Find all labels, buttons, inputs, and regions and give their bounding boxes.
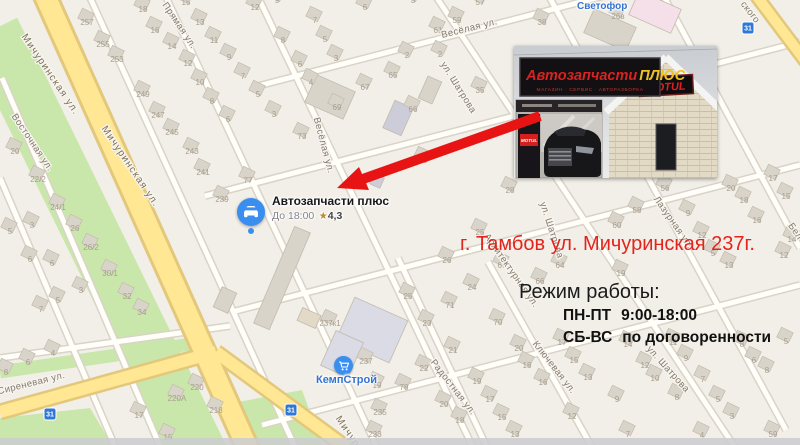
house-number: 218 (209, 406, 223, 415)
house-number: 6 (363, 3, 368, 12)
house-number: 13 (584, 373, 593, 382)
house-number: 15 (182, 0, 191, 7)
store-label[interactable]: Автозапчасти плюс До 18:00 ★4,3 (272, 195, 389, 223)
house-number: 57 (476, 0, 485, 7)
house-number: 11 (210, 36, 219, 45)
house-number: 5 (784, 337, 789, 346)
house-number: 7 (701, 375, 706, 384)
house-number: 245 (165, 128, 179, 137)
house-number: 16 (539, 378, 548, 387)
rating-star-icon: ★ (319, 211, 328, 222)
photo-window (656, 124, 676, 170)
house-number: 8 (4, 368, 9, 377)
house-number: 67 (361, 83, 370, 92)
house-number: 70 (494, 318, 503, 327)
store-rating: 4,3 (328, 210, 343, 222)
house-number: 58 (633, 206, 642, 215)
house-number: 65 (389, 71, 398, 80)
house-number: 20 (727, 184, 736, 193)
car-silhouette (544, 126, 601, 177)
house-number: 9 (686, 209, 691, 218)
house-number: 38 (538, 18, 547, 27)
house-number: 7 (313, 16, 318, 25)
house-number: 22 (420, 364, 429, 373)
house-number: 25 (404, 292, 413, 301)
working-hours-weekdays: ПН-ПТ9:00-18:00 (563, 307, 697, 325)
svg-text:АвтозапчастиПЛЮС: АвтозапчастиПЛЮС (525, 68, 686, 84)
address-annotation: г. Тамбов ул. Мичуринская 237г. (460, 233, 755, 256)
weekdays-time: 9:00-18:00 (621, 307, 697, 324)
house-number: 33 (419, 156, 428, 165)
house-number: 235 (373, 408, 387, 417)
house-number: 15 (498, 413, 507, 422)
house-number: 23 (423, 319, 432, 328)
kempstroy-label[interactable]: КемпСтрой (316, 374, 377, 386)
house-number: 243 (185, 147, 199, 156)
house-number: 24/1 (50, 203, 66, 212)
house-number: 6 (26, 358, 31, 367)
house-number: 17 (486, 395, 495, 404)
house-number: 5 (256, 90, 261, 99)
working-hours-weekend: СБ-ВСпо договоренности (563, 329, 771, 347)
house-number: 3 (411, 0, 416, 5)
weekdays-label: ПН-ПТ (563, 307, 611, 325)
house-number: 26 (443, 256, 452, 265)
house-number: 5 (716, 395, 721, 404)
house-number: 16 (151, 26, 160, 35)
house-number: 18 (139, 5, 148, 14)
house-number: 56 (661, 184, 670, 193)
car-icon (242, 203, 260, 221)
house-number: 10 (196, 78, 205, 87)
house-number: 6 (298, 60, 303, 69)
svg-text:МАГАЗИН · СЕРВИС · АВТОРАЗБОРК: МАГАЗИН · СЕРВИС · АВТОРАЗБОРКА (537, 87, 644, 93)
house-number: 247 (151, 111, 165, 120)
house-number: 20 (11, 147, 20, 156)
house-number: 18 (456, 416, 465, 425)
shopping-cart-icon (338, 360, 350, 372)
house-number: 239 (215, 195, 229, 204)
house-number: 255 (96, 40, 110, 49)
map-edge-strip (0, 438, 800, 445)
house-number: 237 (359, 357, 373, 366)
house-number: 35 (476, 86, 485, 95)
kempstroy-map-pin[interactable] (334, 356, 353, 375)
house-number: 59 (453, 16, 462, 25)
weekend-time: по договоренности (622, 329, 771, 346)
storefront-photo: MOTUL АвтозапчастиПЛЮС МАГАЗИН · СЕРВИС … (514, 46, 717, 178)
house-number: 6 (226, 115, 231, 124)
house-number: 5 (56, 296, 61, 305)
house-number: 8 (675, 393, 680, 402)
house-number: 10 (651, 374, 660, 383)
house-number: 12 (780, 251, 789, 260)
svetofor-label[interactable]: Светофор (577, 1, 627, 12)
store-hours: До 18:00 (272, 210, 314, 222)
house-number: 18 (523, 361, 532, 370)
house-number: 3 (272, 110, 277, 119)
house-number: 24 (468, 283, 477, 292)
house-number: 237к1 (319, 319, 341, 328)
store-name[interactable]: Автозапчасти плюс (272, 195, 389, 208)
house-number: 3 (79, 286, 84, 295)
house-number: 22/2 (30, 175, 46, 184)
house-number: 249 (136, 90, 150, 99)
house-number: 6 (752, 356, 757, 365)
house-number: 78 (400, 383, 409, 392)
house-number: 220А (168, 394, 187, 403)
house-number: 241 (196, 168, 210, 177)
house-number: 13 (725, 261, 734, 270)
svg-text:MOTUL: MOTUL (521, 138, 538, 143)
house-number: 13 (196, 18, 205, 27)
working-hours-title: Режим работы: (519, 281, 660, 304)
house-number: 77 (244, 176, 253, 185)
house-number: 19 (473, 377, 482, 386)
pin-tail-dot (248, 228, 254, 234)
house-number: 9 (615, 395, 620, 404)
house-number: 15 (782, 192, 791, 201)
house-number: 14 (168, 42, 177, 51)
house-number: 7 (241, 72, 246, 81)
store-status-row: До 18:00 ★4,3 (272, 208, 389, 223)
house-number: 19 (617, 269, 626, 278)
house-number: 17 (769, 174, 778, 183)
house-number: 69 (333, 103, 342, 112)
map-screenshot: 1816141210861513119751225725525324924724… (0, 0, 800, 445)
house-number: 4 (309, 78, 314, 87)
house-number: 5 (323, 35, 328, 44)
transit-stop-number: 31 (744, 26, 752, 33)
house-number: 9 (684, 354, 689, 363)
house-number: 30/1 (102, 269, 118, 278)
house-number: 26/2 (83, 243, 99, 252)
house-number: 12 (251, 3, 260, 12)
house-number: 2 (438, 50, 443, 59)
house-number: 220 (190, 383, 204, 392)
house-number: 6 (50, 259, 55, 268)
house-number: 71 (446, 301, 455, 310)
store-map-pin[interactable] (237, 198, 265, 226)
banner-poster: MOTUL (516, 100, 602, 178)
weekend-label: СБ-ВС (563, 329, 612, 347)
house-number: 3 (730, 412, 735, 421)
house-number: 8 (765, 366, 770, 375)
house-number: 16 (753, 216, 762, 225)
house-number: 18 (740, 196, 749, 205)
transit-stop-number: 31 (287, 408, 295, 415)
house-number: 3 (334, 54, 339, 63)
house-number: 5 (8, 227, 13, 236)
house-number: 20 (440, 400, 449, 409)
house-number: 253 (110, 55, 124, 64)
house-number: 8 (281, 36, 286, 45)
house-number: 257 (80, 18, 94, 27)
house-number: 73 (298, 132, 307, 141)
house-number: 28 (506, 186, 515, 195)
house-number: 7 (39, 305, 44, 314)
house-number: 64 (556, 261, 565, 270)
house-number: 9 (275, 0, 280, 5)
house-number: 32 (123, 292, 132, 301)
transit-stop-number: 31 (46, 412, 54, 419)
house-number: 12 (184, 59, 193, 68)
house-number: 17 (135, 411, 144, 420)
house-number: 4 (51, 349, 56, 358)
house-number: 60 (613, 221, 622, 230)
house-number: 6 (28, 255, 33, 264)
house-number: 26 (71, 224, 80, 233)
house-number: 26в (611, 12, 624, 21)
house-number: 12 (568, 412, 577, 421)
house-number: 2 (405, 51, 410, 60)
house-number: 9 (227, 53, 232, 62)
house-number: 3 (30, 221, 35, 230)
house-number: 66 (409, 105, 418, 114)
house-number: 21 (449, 346, 458, 355)
house-number: 15 (570, 356, 579, 365)
house-number: 8 (210, 97, 215, 106)
house-number: 34 (138, 308, 147, 317)
